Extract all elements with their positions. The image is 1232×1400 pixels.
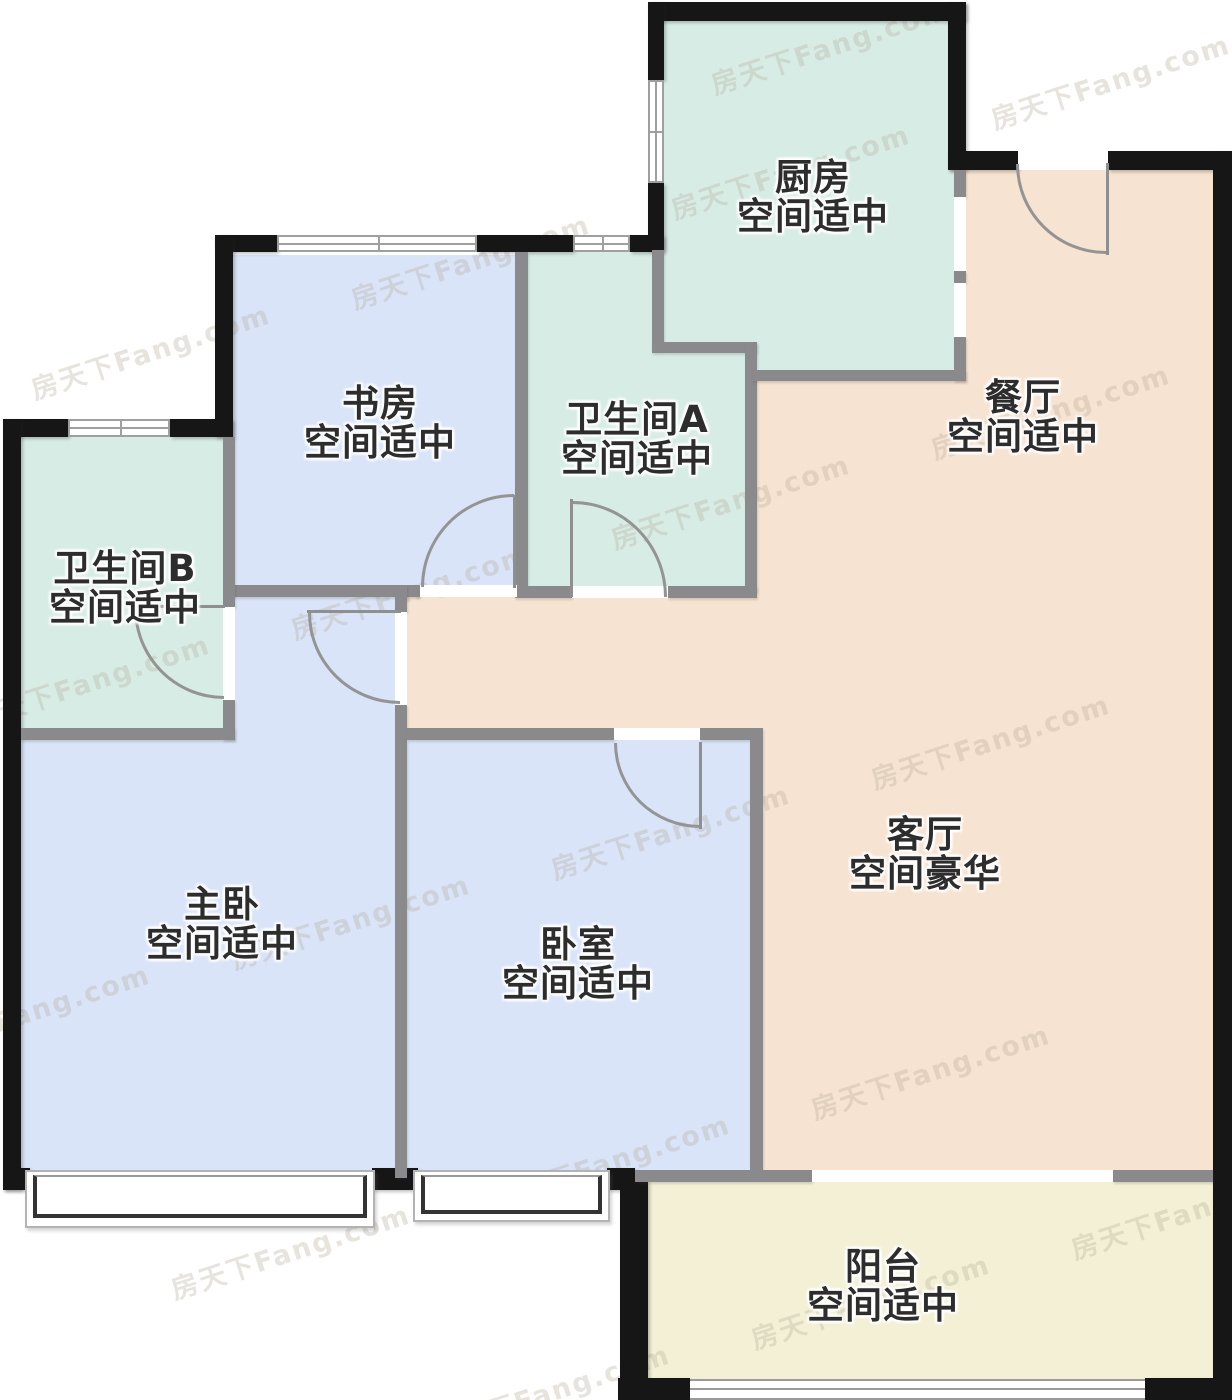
interior-wall-segment: [395, 585, 407, 612]
wall-opening: [812, 1170, 1113, 1182]
room-label-bath-a: 卫生间A 空间适中: [561, 401, 713, 479]
room-label-kitchen: 厨房 空间适中: [737, 159, 889, 237]
interior-wall-segment: [668, 586, 757, 598]
interior-wall-segment: [515, 586, 572, 598]
room-size: 空间适中: [947, 418, 1099, 457]
kitchen-window: [648, 80, 664, 183]
room-name: 客厅: [849, 816, 1001, 855]
room-name: 卫生间B: [49, 550, 201, 589]
interior-wall-segment: [407, 728, 614, 740]
interior-wall-segment: [700, 728, 763, 740]
watermark-text: 房天下Fang.com: [985, 23, 1232, 137]
exterior-wall-segment: [948, 2, 966, 170]
interior-wall-segment: [395, 728, 407, 1178]
room-name: 卧室: [502, 926, 654, 965]
interior-wall-segment: [652, 250, 664, 350]
exterior-wall-segment: [648, 2, 664, 80]
room-size: 空间适中: [807, 1287, 959, 1326]
interior-wall-segment: [954, 271, 966, 283]
room-name: 厨房: [737, 159, 889, 198]
room-label-bedroom: 卧室 空间适中: [502, 926, 654, 1004]
master-bay-window: [25, 1170, 375, 1228]
interior-wall-segment: [954, 337, 966, 381]
bedroom-bay-window-frame: [421, 1175, 602, 1214]
room-label-living: 客厅 空间豪华: [849, 816, 1001, 894]
room-name: 卫生间A: [561, 401, 713, 440]
room-size: 空间适中: [49, 589, 201, 628]
interior-wall-segment: [750, 740, 763, 1178]
window-mullion: [650, 131, 662, 133]
exterior-wall-segment: [1145, 1378, 1232, 1400]
floorplan-canvas: 房天下Fang.com房天下Fang.com房天下Fang.com房天下Fang…: [0, 0, 1232, 1400]
interior-wall-segment: [652, 342, 757, 353]
wall-opening: [954, 197, 966, 271]
room-label-bath-b: 卫生间B 空间适中: [49, 550, 201, 628]
room-name: 餐厅: [947, 379, 1099, 418]
wall-opening: [614, 728, 700, 740]
exterior-wall-segment: [477, 235, 573, 252]
balcony-railing: [690, 1379, 1145, 1400]
interior-wall-segment: [223, 437, 235, 607]
exterior-wall-segment: [618, 1378, 690, 1400]
room-name: 主卧: [146, 886, 298, 925]
interior-wall-segment: [395, 705, 407, 728]
room-name: 书房: [304, 385, 456, 424]
window-mullion: [602, 237, 604, 250]
interior-wall-segment: [1113, 1170, 1213, 1182]
bedroom-bay-window: [413, 1170, 610, 1222]
window-mullion: [120, 421, 122, 435]
wall-opening: [954, 283, 966, 337]
exterior-wall-segment: [620, 1180, 648, 1400]
wall-opening: [223, 607, 235, 700]
interior-wall-segment: [635, 1170, 812, 1182]
room-label-dining: 餐厅 空间适中: [947, 379, 1099, 457]
room-size: 空间适中: [304, 424, 456, 463]
interior-wall-segment: [233, 585, 420, 597]
interior-wall-segment: [753, 370, 966, 381]
room-label-study: 书房 空间适中: [304, 385, 456, 463]
exterior-wall-segment: [948, 151, 1018, 170]
dining-living-floor: [957, 170, 1213, 1178]
interior-wall-segment: [954, 170, 966, 197]
study-window: [277, 235, 477, 252]
exterior-wall-segment: [1213, 151, 1232, 1400]
interior-wall-segment: [21, 728, 235, 740]
room-size: 空间适中: [737, 198, 889, 237]
room-name: 阳台: [807, 1248, 959, 1287]
room-label-balcony: 阳台 空间适中: [807, 1248, 959, 1326]
entry-door-leaf: [1106, 163, 1109, 255]
room-size: 空间适中: [561, 440, 713, 479]
bath-b-window: [68, 419, 170, 437]
bath-a-window: [573, 235, 630, 252]
window-mullion: [378, 237, 380, 250]
room-size: 空间适中: [502, 965, 654, 1004]
interior-wall-segment: [515, 252, 528, 590]
exterior-wall-segment: [3, 419, 21, 1190]
room-label-master: 主卧 空间适中: [146, 886, 298, 964]
window-pane-line: [279, 243, 475, 245]
window-pane-line: [70, 427, 168, 429]
exterior-wall-segment: [170, 419, 233, 437]
exterior-wall-segment: [648, 2, 966, 21]
hallway-floor: [407, 597, 757, 737]
exterior-wall-segment: [215, 235, 233, 437]
room-size: 空间适中: [146, 925, 298, 964]
room-size: 空间豪华: [849, 855, 1001, 894]
master-bay-window-frame: [33, 1175, 367, 1218]
